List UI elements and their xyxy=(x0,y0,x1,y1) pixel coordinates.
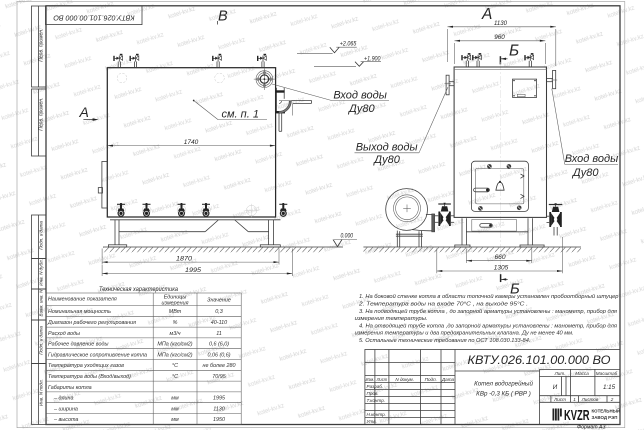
svg-text:МПа (кгс/см2): МПа (кгс/см2) xyxy=(157,352,192,358)
svg-text:2: 2 xyxy=(610,397,614,402)
svg-text:Наименование показателя: Наименование показателя xyxy=(48,297,117,303)
svg-text:Инв. N дубл.: Инв. N дубл. xyxy=(39,259,44,286)
svg-text:0,3: 0,3 xyxy=(215,309,223,315)
svg-text:Ду80: Ду80 xyxy=(372,154,400,166)
svg-text:+2.065: +2.065 xyxy=(340,41,357,48)
svg-text:0,6 (6,0): 0,6 (6,0) xyxy=(209,342,229,348)
svg-text:мм: мм xyxy=(171,396,179,402)
svg-text:Масса: Масса xyxy=(575,371,589,376)
svg-text:Лит.: Лит. xyxy=(554,371,566,376)
svg-text:измерения: измерения xyxy=(162,300,189,306)
svg-text:Техническая характеристика: Техническая характеристика xyxy=(99,287,179,293)
svg-text:Б: Б xyxy=(509,43,519,60)
svg-text:Расход воды: Расход воды xyxy=(48,331,80,337)
svg-text:1870: 1870 xyxy=(176,256,192,263)
svg-text:3. На подводящей трубе котла: 3. На подводящей трубе котла , до запорн… xyxy=(359,308,617,315)
svg-text:5. Остальные технические треб: 5. Остальные технические требования по О… xyxy=(359,338,530,344)
svg-text:КВр -0,3 КБ ( РВР ): КВр -0,3 КБ ( РВР ) xyxy=(476,390,531,397)
svg-text:Изм.: Изм. xyxy=(366,377,375,382)
svg-text:Лист: Лист xyxy=(376,377,388,382)
svg-text:Температура уходящих газов: Температура уходящих газов xyxy=(48,363,124,369)
svg-text:Взам. инв. N: Взам. инв. N xyxy=(39,289,44,316)
svg-text:А: А xyxy=(79,104,89,120)
svg-text:2. Температура воды на входе: 2. Температура воды на входе 70°С , на в… xyxy=(358,302,528,308)
svg-text:+1.900: +1.900 xyxy=(364,55,381,62)
svg-text:не более 280: не более 280 xyxy=(203,363,236,369)
svg-text:Выход воды: Выход воды xyxy=(356,142,418,154)
svg-text:Котел водогрейный: Котел водогрейный xyxy=(474,381,533,388)
svg-text:– ширина: – ширина xyxy=(53,406,78,412)
svg-text:1305: 1305 xyxy=(494,265,509,272)
svg-text:МВт: МВт xyxy=(169,309,182,315)
svg-text:Разраб.: Разраб. xyxy=(367,384,384,389)
svg-text:Ду80: Ду80 xyxy=(571,167,599,179)
svg-text:Лист: Лист xyxy=(553,397,566,402)
svg-text:°С: °С xyxy=(172,363,178,369)
svg-text:KVZR: KVZR xyxy=(564,408,590,424)
svg-text:И: И xyxy=(553,384,558,391)
svg-text:960: 960 xyxy=(494,34,505,41)
svg-text:измерения температуры.: измерения температуры. xyxy=(355,316,428,322)
svg-text:1950: 1950 xyxy=(213,417,225,423)
svg-text:МПа (кгс/см2): МПа (кгс/см2) xyxy=(157,342,192,348)
svg-text:660: 660 xyxy=(495,254,506,261)
svg-text:Формат А3: Формат А3 xyxy=(577,425,605,430)
svg-text:Вход воды: Вход воды xyxy=(333,89,386,101)
svg-text:– длина: – длина xyxy=(53,396,73,402)
svg-text:Листов: Листов xyxy=(581,397,599,402)
svg-text:В: В xyxy=(218,8,228,24)
svg-text:1740: 1740 xyxy=(184,139,199,146)
svg-text:А: А xyxy=(481,6,492,23)
svg-text:1: 1 xyxy=(573,397,576,402)
svg-text:Утв.: Утв. xyxy=(367,419,377,424)
svg-text:1130: 1130 xyxy=(213,406,225,412)
svg-text:Масштаб: Масштаб xyxy=(596,371,618,376)
svg-text:Т.контр.: Т.контр. xyxy=(367,398,386,403)
svg-text:%: % xyxy=(173,320,178,326)
svg-text:измерения температуры и два пр: измерения температуры и два предохраните… xyxy=(355,331,574,337)
svg-text:Гидравлическое сопротивление к: Гидравлическое сопротивление котла xyxy=(48,352,147,358)
svg-text:Подп. и дата: Подп. и дата xyxy=(39,326,44,355)
svg-text:мм: мм xyxy=(171,417,179,423)
svg-text:Перв. примен.: Перв. примен. xyxy=(39,28,45,61)
svg-text:см. п. 1: см. п. 1 xyxy=(222,108,259,120)
svg-text:1:15: 1:15 xyxy=(603,384,616,391)
svg-text:Ду80: Ду80 xyxy=(347,103,375,115)
svg-text:°С: °С xyxy=(172,374,178,380)
svg-text:Перв. примен.: Перв. примен. xyxy=(39,97,45,130)
svg-text:КОТЕЛЬНЫЙ: КОТЕЛЬНЫЙ xyxy=(592,409,621,414)
svg-text:Значение: Значение xyxy=(207,298,231,304)
svg-text:Пров.: Пров. xyxy=(367,391,379,396)
svg-text:Диапазон рабочего регулировани: Диапазон рабочего регулирования xyxy=(47,320,136,326)
svg-text:1995: 1995 xyxy=(213,396,226,402)
svg-text:0.000: 0.000 xyxy=(341,232,354,239)
svg-text:11: 11 xyxy=(216,331,222,337)
svg-text:КВТУ.026.101.00.000 ВО: КВТУ.026.101.00.000 ВО xyxy=(468,355,611,367)
svg-text:0,06 (0,6): 0,06 (0,6) xyxy=(207,352,230,358)
svg-text:1. На боковой стенке котла в: 1. На боковой стенке котла в области топ… xyxy=(359,293,619,300)
svg-text:Дата: Дата xyxy=(441,377,455,382)
svg-text:Температура воды (Вход/выход): Температура воды (Вход/выход) xyxy=(48,374,131,380)
svg-text:Вход воды: Вход воды xyxy=(565,153,618,165)
svg-text:ЗАВОД РЭП: ЗАВОД РЭП xyxy=(592,415,618,420)
svg-text:Подп. и дата: Подп. и дата xyxy=(39,221,44,250)
svg-text:Подп.: Подп. xyxy=(425,377,437,382)
svg-text:4. На отводящей трубе котла ,: 4. На отводящей трубе котла ,до запорной… xyxy=(359,322,617,329)
svg-text:Рабочее давление воды: Рабочее давление воды xyxy=(48,342,108,348)
svg-text:– высота: – высота xyxy=(53,417,78,423)
svg-text:70/95: 70/95 xyxy=(212,374,226,380)
svg-text:40-110: 40-110 xyxy=(211,320,227,326)
svg-text:N докум.: N докум. xyxy=(395,377,414,382)
svg-text:Габариты котла: Габариты котла xyxy=(48,385,92,391)
svg-text:Н.контр.: Н.контр. xyxy=(367,412,386,417)
svg-text:Инв. N подл.: Инв. N подл. xyxy=(39,379,44,406)
svg-text:КВТУ.026.101.00.000 ВО: КВТУ.026.101.00.000 ВО xyxy=(53,13,135,22)
svg-text:мм: мм xyxy=(171,406,179,412)
svg-text:м3/ч: м3/ч xyxy=(170,331,181,337)
svg-text:1995: 1995 xyxy=(185,267,201,274)
svg-text:Номинальная мощность: Номинальная мощность xyxy=(48,309,111,315)
svg-text:1130: 1130 xyxy=(494,20,507,27)
